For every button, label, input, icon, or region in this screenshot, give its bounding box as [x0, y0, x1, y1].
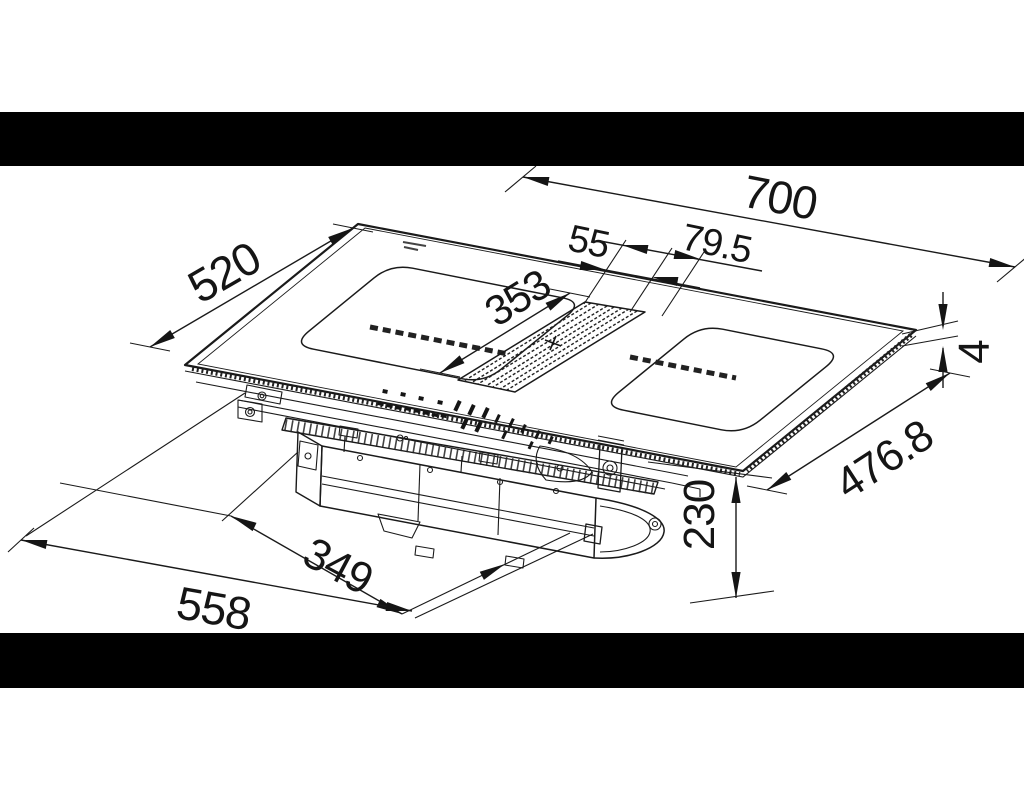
dim-700-label: 700: [739, 165, 821, 230]
extractor-grille: [458, 302, 645, 392]
dim-230-label: 230: [675, 480, 724, 550]
cooking-zone-right: [612, 328, 834, 431]
dim-55: 55: [558, 218, 700, 312]
dim-353-label: 353: [476, 260, 558, 335]
brand-mark: [403, 242, 426, 250]
dim-79-5: 79.5: [600, 216, 762, 316]
control-panel: [377, 389, 553, 450]
top-letterbox-band: [0, 112, 1024, 166]
zone-marker-left: [370, 327, 508, 354]
dim-79-5-label: 79.5: [678, 216, 755, 272]
dim-476-8-label: 476.8: [827, 411, 942, 509]
dim-349-label: 349: [295, 528, 380, 604]
zone-marker-right: [630, 357, 736, 378]
dim-476-8: 476.8: [747, 369, 970, 509]
dim-4-label: 4: [950, 340, 999, 364]
dim-558: 558: [8, 393, 593, 640]
dim-230: 230: [648, 462, 774, 603]
hob-chassis: [196, 382, 700, 497]
bottom-letterbox-band: [0, 633, 1024, 688]
dim-520-label: 520: [179, 231, 269, 313]
dim-520: 520: [130, 224, 373, 351]
technical-drawing-page: 700 520 353 55 79.5: [0, 0, 1024, 800]
technical-drawing: 700 520 353 55 79.5: [0, 0, 1024, 800]
dim-558-label: 558: [173, 576, 255, 640]
